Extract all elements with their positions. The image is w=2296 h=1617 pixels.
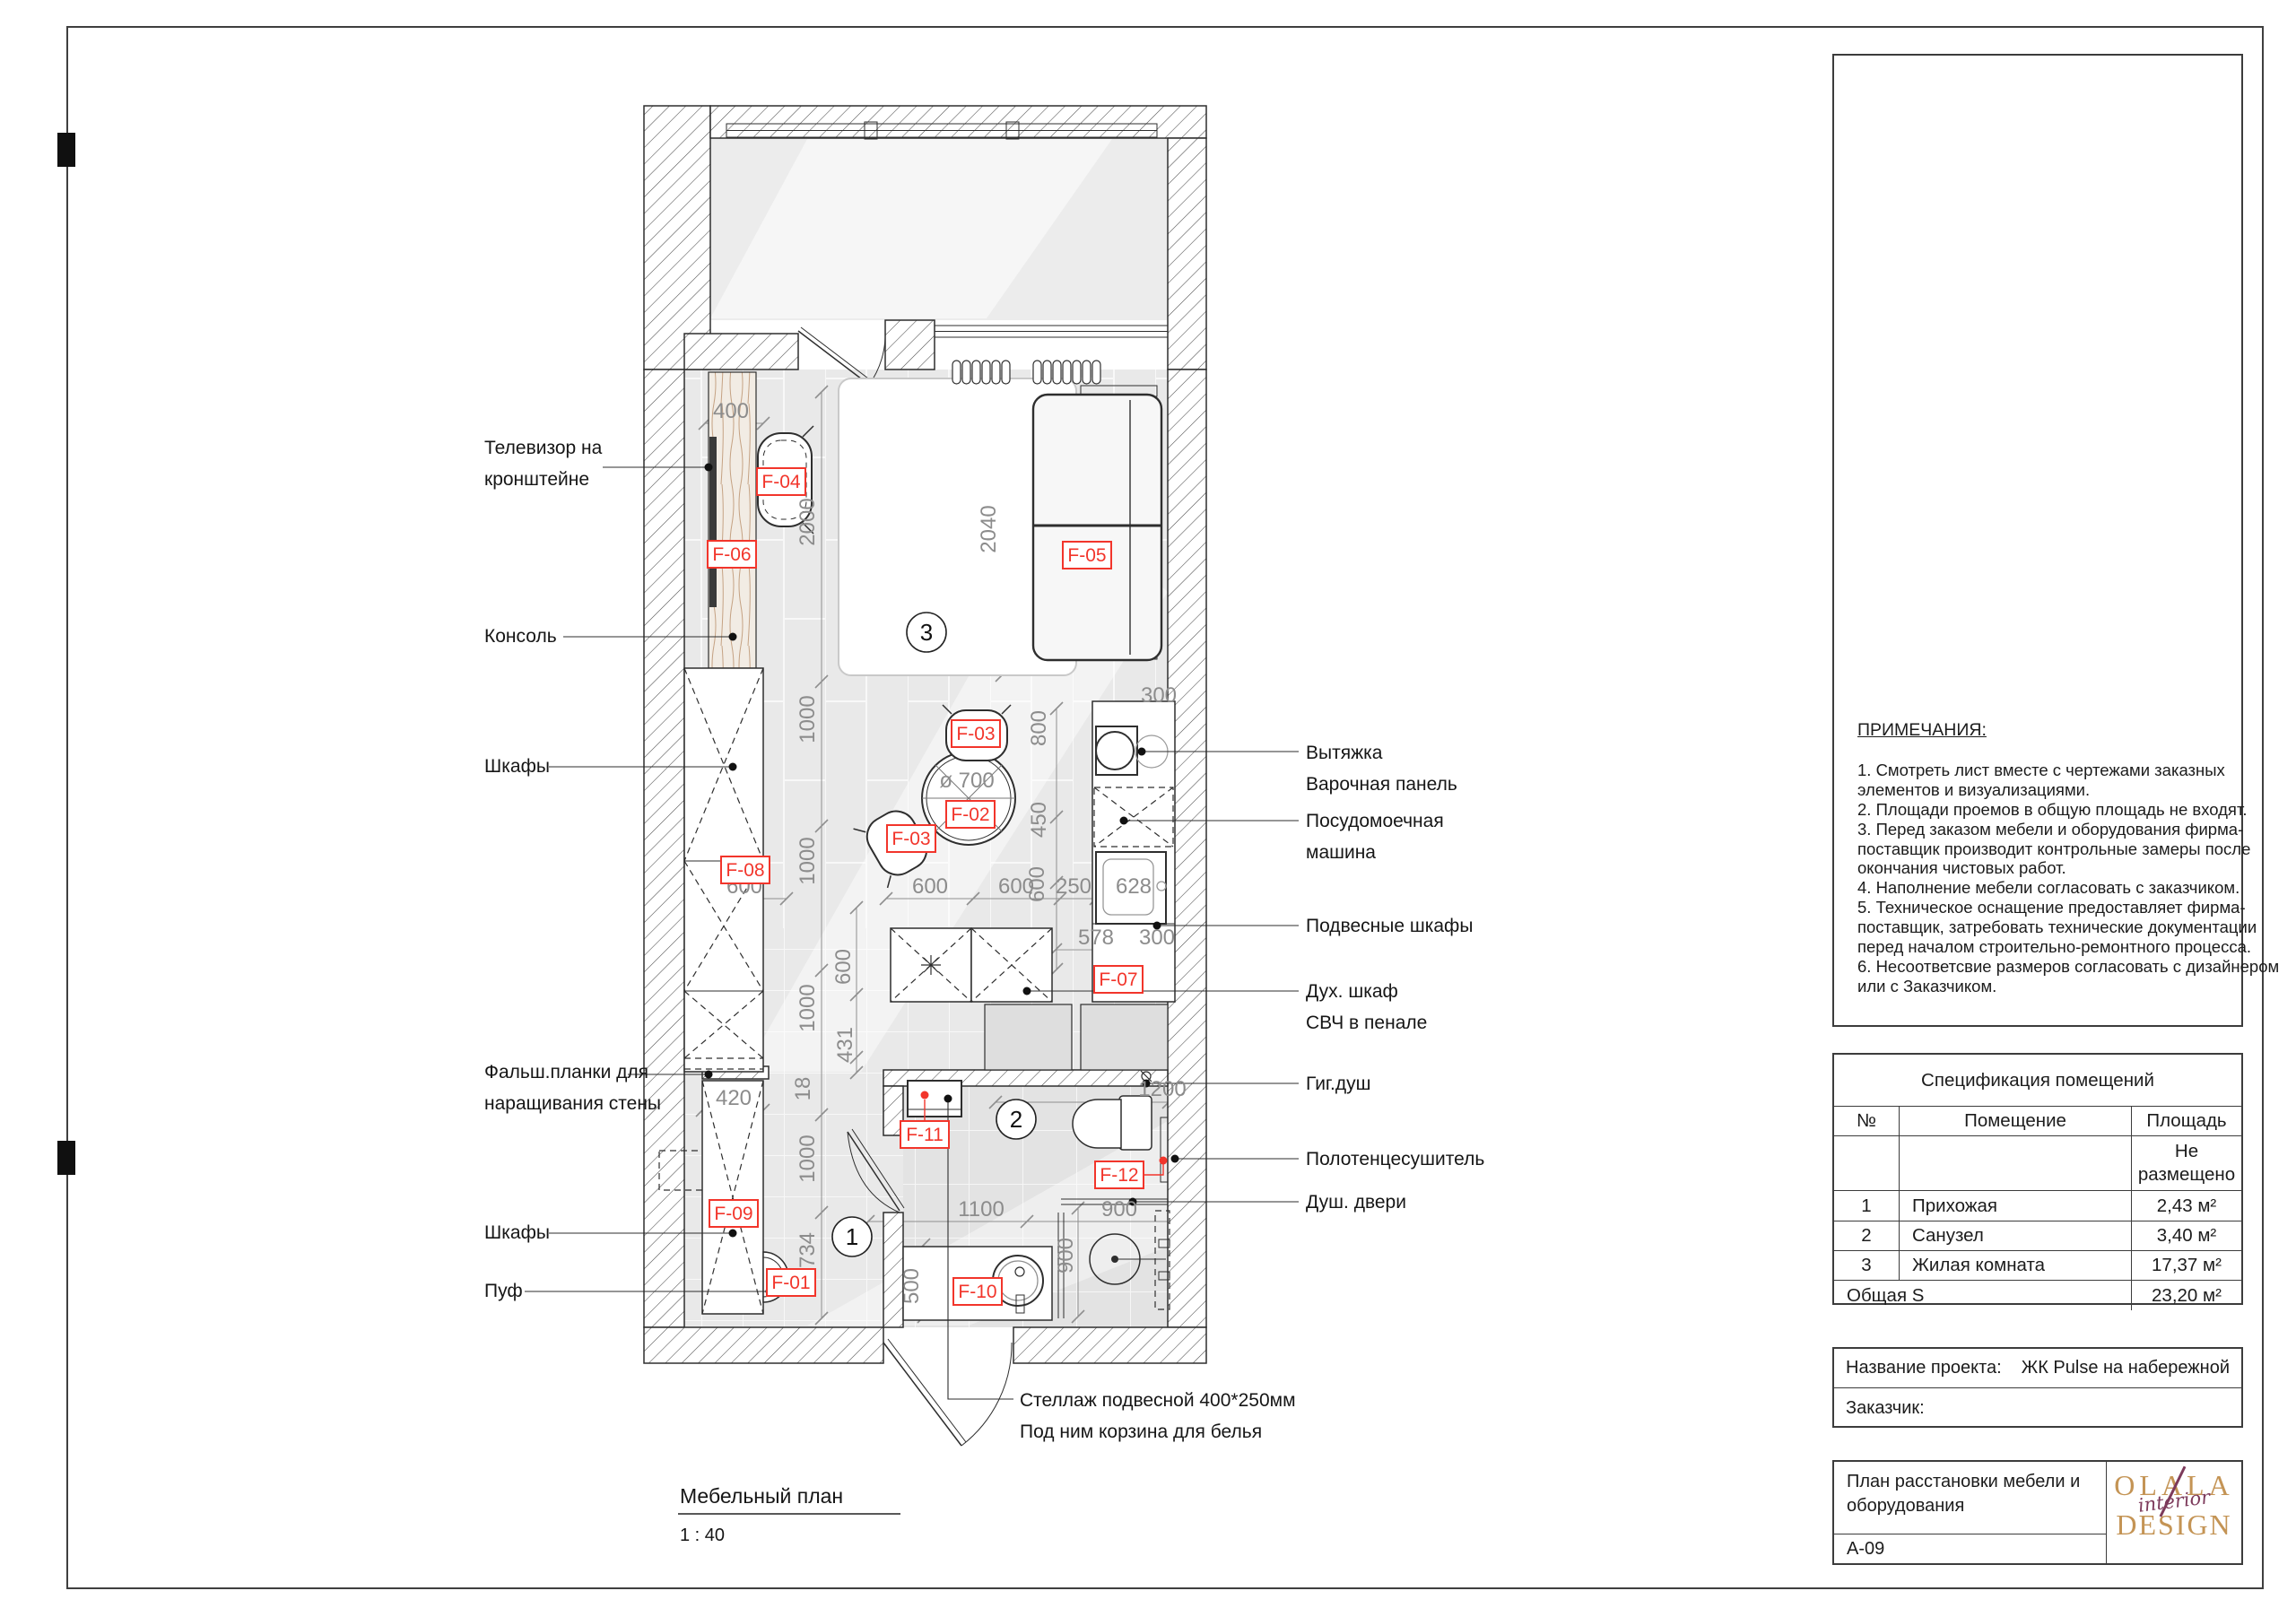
binding-tab	[57, 1141, 75, 1175]
svg-text:F-05: F-05	[1067, 545, 1106, 566]
label-dishwasher: Посудомоечная	[1306, 811, 1444, 831]
notes-panel: ПРИМЕЧАНИЯ: 1. Смотреть лист вместе с че…	[1832, 54, 2243, 1027]
note-line: поставщик производит контрольные замеры …	[1857, 839, 2279, 859]
label-furring: Фальш.планки для	[484, 1062, 648, 1082]
svg-text:F-03: F-03	[891, 829, 930, 849]
svg-text:1000: 1000	[796, 1135, 820, 1182]
note-line: окончания чистовых работ.	[1857, 858, 2279, 878]
table-row: 1Прихожая2,43 м²	[1834, 1191, 2241, 1221]
svg-text:250: 250	[1056, 874, 1091, 899]
toilet	[1073, 1096, 1152, 1150]
svg-text:машина: машина	[1306, 842, 1376, 863]
label-console: Консоль	[484, 626, 557, 647]
svg-text:600: 600	[1025, 866, 1049, 902]
svg-text:18: 18	[791, 1077, 815, 1101]
note-line: поставщик, затребовать технические докум…	[1857, 917, 2279, 937]
plan-title: Мебельный план	[680, 1484, 843, 1508]
svg-text:900: 900	[1101, 1197, 1137, 1221]
svg-text:кронштейне: кронштейне	[484, 469, 589, 490]
svg-text:600: 600	[912, 874, 948, 899]
label-wall-cabinets: Подвесные шкафы	[1306, 916, 1473, 936]
svg-text:F-11: F-11	[906, 1125, 944, 1145]
svg-text:1000: 1000	[796, 695, 820, 743]
project-info: Название проекта: ЖК Pulse на набережной…	[1832, 1347, 2243, 1428]
label-cabinets-bottom: Шкафы	[484, 1222, 550, 1243]
plan-title-group: Мебельный план 1 : 40	[678, 1484, 900, 1545]
svg-text:1: 1	[846, 1223, 858, 1250]
label-towel-rail: Полотенцесушитель	[1306, 1149, 1484, 1169]
studio-logo: OLALA DESIGN interior	[2107, 1462, 2241, 1563]
svg-text:Варочная панель: Варочная панель	[1306, 774, 1457, 795]
room-marker-3: 3	[907, 613, 946, 652]
project-name-label: Название проекта:	[1846, 1358, 2002, 1378]
svg-text:F-01: F-01	[771, 1273, 810, 1293]
room-marker-2: 2	[996, 1100, 1036, 1139]
svg-text:СВЧ в пенале: СВЧ в пенале	[1306, 1013, 1427, 1033]
table-row: 3Жилая комната17,37 м²	[1834, 1251, 2241, 1281]
label-pouf: Пуф	[484, 1281, 523, 1301]
label-oven: Дух. шкаф	[1306, 981, 1398, 1002]
note-line: элементов и визуализациями.	[1857, 780, 2279, 800]
room-window	[935, 326, 1168, 337]
svg-text:734: 734	[796, 1232, 820, 1268]
plan-scale: 1 : 40	[680, 1526, 725, 1545]
sheet-name: План расстановки мебели и оборудования	[1834, 1462, 2106, 1534]
note-line: 5. Техническое оснащение предоставляет ф…	[1857, 898, 2279, 917]
svg-text:F-07: F-07	[1099, 969, 1137, 990]
note-line: 6. Несоответсвие размеров согласовать с …	[1857, 957, 2279, 977]
svg-text:600: 600	[831, 949, 856, 985]
svg-text:500: 500	[900, 1268, 924, 1304]
tv-panel	[709, 437, 717, 607]
client-label: Заказчик:	[1846, 1398, 1925, 1419]
project-name-value: ЖК Pulse на набережной	[2022, 1358, 2230, 1378]
svg-text:800: 800	[1027, 710, 1051, 746]
hob	[1096, 726, 1137, 775]
svg-text:900: 900	[1054, 1238, 1078, 1274]
hanging-shelf	[908, 1081, 961, 1117]
label-hood: Вытяжка	[1306, 743, 1383, 763]
note-line: 4. Наполнение мебели согласовать с заказ…	[1857, 878, 2279, 898]
table-diameter-label: ø 700	[939, 769, 994, 793]
room-marker-1: 1	[832, 1217, 872, 1256]
notes-heading: ПРИМЕЧАНИЯ:	[1857, 721, 2279, 741]
svg-text:300: 300	[1141, 683, 1177, 708]
table-row: 2Санузел3,40 м²	[1834, 1221, 2241, 1251]
svg-text:431: 431	[833, 1027, 857, 1063]
note-line: 1. Смотреть лист вместе с чертежами зака…	[1857, 761, 2279, 780]
label-shelf: Стеллаж подвесной 400*250мм	[1020, 1390, 1296, 1411]
svg-text:F-12: F-12	[1100, 1165, 1138, 1186]
spec-header-row: № Помещение Площадь	[1834, 1107, 2241, 1136]
note-line: перед началом строительно-ремонтного про…	[1857, 937, 2279, 957]
svg-text:F-03: F-03	[956, 724, 995, 744]
hall-wardrobe	[702, 1081, 763, 1314]
label-hyg-shower: Гиг.душ	[1306, 1074, 1370, 1094]
svg-text:F-08: F-08	[726, 860, 764, 881]
note-line: 3. Перед заказом мебели и оборудования ф…	[1857, 820, 2279, 839]
svg-text:578: 578	[1078, 926, 1114, 950]
svg-text:1000: 1000	[796, 984, 820, 1031]
room-spec-table: Спецификация помещений № Помещение Площа…	[1832, 1053, 2243, 1305]
svg-text:1100: 1100	[958, 1197, 1004, 1221]
svg-text:F-06: F-06	[712, 544, 751, 565]
svg-text:2: 2	[1010, 1106, 1022, 1133]
note-line: или с Заказчиком.	[1857, 977, 2279, 996]
svg-text:Под ним корзина для белья: Под ним корзина для белья	[1020, 1421, 1262, 1442]
svg-text:F-09: F-09	[714, 1204, 752, 1224]
kitchen-run	[1092, 701, 1175, 1002]
svg-text:F-10: F-10	[958, 1282, 996, 1302]
svg-text:наращивания стены: наращивания стены	[484, 1093, 661, 1114]
svg-text:2000: 2000	[796, 498, 820, 545]
sofa	[1033, 386, 1161, 660]
label-cabinets-top: Шкафы	[484, 756, 550, 777]
svg-text:400: 400	[713, 399, 749, 423]
svg-text:3: 3	[920, 619, 933, 646]
label-shower-doors: Душ. двери	[1306, 1192, 1406, 1213]
sheet-code: A-09	[1834, 1534, 2106, 1563]
note-line: 2. Площади проемов в общую площадь не вх…	[1857, 800, 2279, 820]
title-block: План расстановки мебели и оборудования A…	[1832, 1460, 2243, 1565]
svg-text:300: 300	[1139, 926, 1175, 950]
binding-tab	[57, 133, 75, 167]
svg-text:1200: 1200	[1138, 1077, 1186, 1101]
spec-table-title: Спецификация помещений	[1834, 1055, 2241, 1107]
svg-text:420: 420	[716, 1086, 752, 1110]
svg-text:450: 450	[1027, 802, 1051, 838]
svg-text:628: 628	[1116, 874, 1152, 899]
spec-unplaced-row: Неразмещено	[1834, 1136, 2241, 1191]
label-tv: Телевизор на	[484, 438, 603, 458]
svg-text:F-04: F-04	[761, 472, 801, 492]
spec-total-row: Общая S 23,20 м²	[1834, 1281, 2241, 1310]
svg-text:F-02: F-02	[951, 804, 989, 825]
svg-text:2040: 2040	[977, 505, 1001, 552]
svg-text:1000: 1000	[796, 837, 820, 884]
